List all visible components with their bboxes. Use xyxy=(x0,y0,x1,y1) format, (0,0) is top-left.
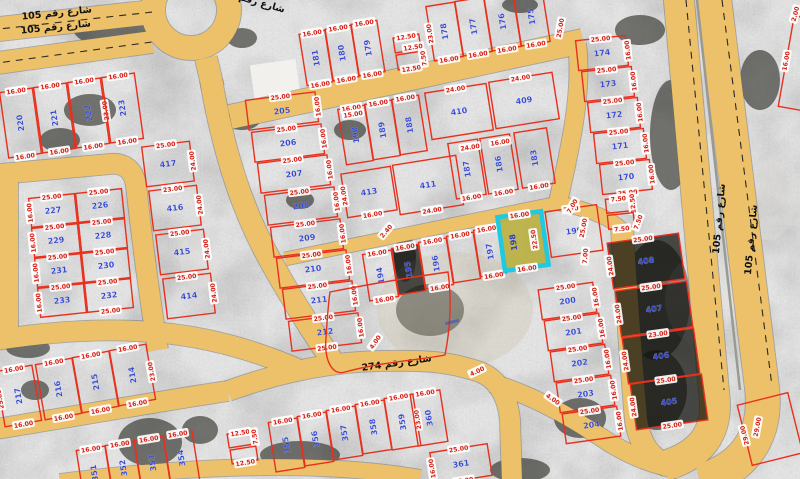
parcel-number: 228 xyxy=(94,230,112,241)
cadastral-map[interactable]: شارع رقم 105شارع رقم 105شارع رقم 105شارع… xyxy=(0,0,800,479)
terrain-shadow xyxy=(740,50,780,110)
parcel-number: 171 xyxy=(611,141,629,152)
parcel-number: 231 xyxy=(50,265,68,276)
parcel-number: 173 xyxy=(599,79,617,90)
parcel-number: 172 xyxy=(605,110,623,121)
selected-parcel[interactable]: 19822.5016.0016.00 xyxy=(497,207,549,275)
parcel-number: 170 xyxy=(617,172,635,183)
map-viewport[interactable]: شارع رقم 105شارع رقم 105شارع رقم 105شارع… xyxy=(0,0,800,479)
parcel-number: 226 xyxy=(91,200,109,211)
parcel-number: 229 xyxy=(47,235,65,246)
parcel-number: 230 xyxy=(97,260,115,271)
dimension-label: 7.00 xyxy=(580,246,590,266)
parcel-number: 233 xyxy=(53,295,71,306)
parcel-number: 232 xyxy=(100,290,118,301)
selected-parcel-layer[interactable]: 19822.5016.0016.00 xyxy=(497,207,549,275)
svg-text:7.00: 7.00 xyxy=(582,247,590,264)
parcel-number: 174 xyxy=(593,48,611,59)
parcel-number: 227 xyxy=(44,205,62,216)
